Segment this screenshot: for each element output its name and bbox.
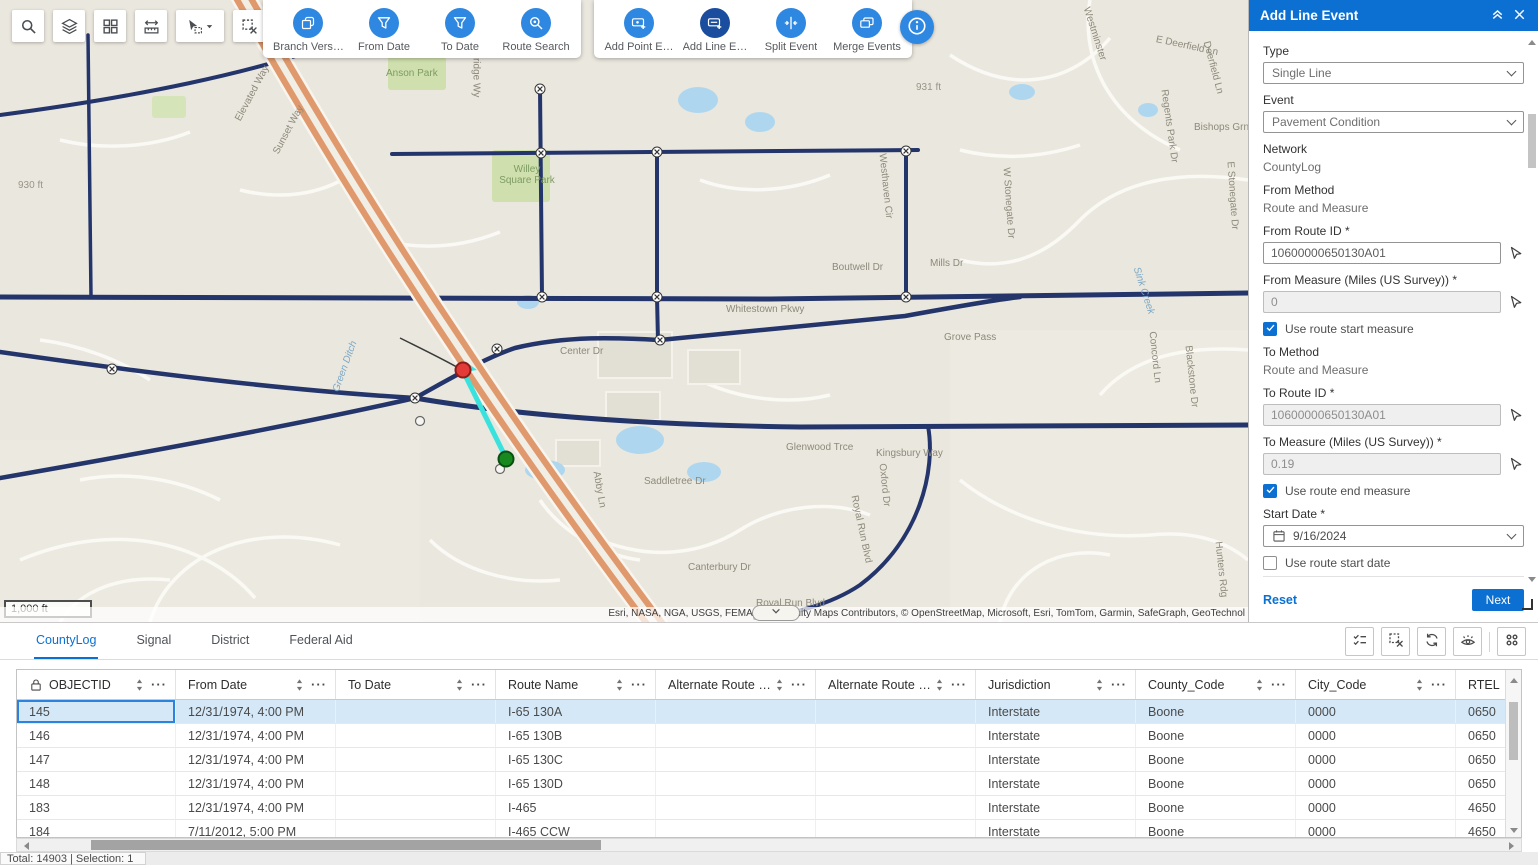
chevron-down-icon <box>1507 116 1517 126</box>
column-menu-icon[interactable]: ··· <box>471 677 487 692</box>
sort-icon[interactable] <box>936 679 943 691</box>
table-cell[interactable]: 147 <box>17 748 176 771</box>
column-header[interactable]: City_Code··· <box>1296 670 1456 699</box>
table-cell[interactable]: Boone <box>1136 772 1296 795</box>
column-header[interactable]: Alternate Route …··· <box>816 670 976 699</box>
panel-scrollbar[interactable] <box>1528 36 1536 586</box>
layers-tool[interactable] <box>53 10 85 42</box>
info-button[interactable] <box>900 10 934 44</box>
to-date-filter-tool[interactable]: To Date <box>427 8 493 53</box>
column-label: County_Code <box>1148 678 1252 692</box>
event-filter-toolbar: Branch Vers…From DateTo DateRoute Search <box>263 0 581 58</box>
column-menu-icon[interactable]: ··· <box>1111 677 1127 692</box>
eye-icon <box>1460 632 1476 651</box>
attribution-collapse-chevron[interactable] <box>752 605 800 621</box>
column-header[interactable]: RTEL <box>1456 670 1505 699</box>
column-header[interactable]: Alternate Route …··· <box>656 670 816 699</box>
scroll-right-arrow[interactable] <box>1509 842 1518 850</box>
sort-icon[interactable] <box>1416 679 1423 691</box>
check-icon <box>1265 556 1276 570</box>
table-cell[interactable]: 0000 <box>1296 820 1456 837</box>
close-icon <box>1512 10 1527 25</box>
use-route-start-date-label: Use route start date <box>1285 556 1390 570</box>
table-cell[interactable]: Interstate <box>976 796 1136 819</box>
tool-label: Merge Events <box>833 41 901 53</box>
scroll-left-arrow[interactable] <box>20 842 29 850</box>
table-cell[interactable] <box>816 820 976 837</box>
table-cell[interactable] <box>816 796 976 819</box>
column-label: RTEL <box>1468 678 1505 692</box>
table-cell[interactable]: I-65 130D <box>496 772 656 795</box>
table-cell[interactable]: 12/31/1974, 4:00 PM <box>176 748 336 771</box>
table-header-row: OBJECTID···From Date···To Date···Route N… <box>17 670 1505 700</box>
attribute-table-section: CountyLogSignalDistrictFederal Aid OBJEC… <box>0 622 1538 865</box>
from-measure-input <box>1263 291 1501 313</box>
checklist-icon <box>1352 632 1368 651</box>
table-row[interactable]: 14712/31/1974, 4:00 PMI-65 130CInterstat… <box>17 748 1505 772</box>
tool-label: Branch Vers… <box>273 41 343 53</box>
map-canvas <box>0 0 1248 622</box>
event-edit-toolbar: Add Point E…Add Line E…Split EventMerge … <box>594 0 912 58</box>
double-chevron-up-icon <box>1490 10 1505 25</box>
table-cell[interactable]: 0650 <box>1456 748 1505 771</box>
from-method-label: From Method <box>1263 183 1524 197</box>
event-select[interactable]: Pavement Condition <box>1263 111 1524 133</box>
event-label: Event <box>1263 93 1524 107</box>
table-options-button[interactable] <box>1497 627 1526 656</box>
clear-selection-icon <box>1388 632 1404 651</box>
type-value: Single Line <box>1272 66 1508 80</box>
tool-label: Route Search <box>502 41 569 53</box>
table-cell[interactable] <box>336 724 496 747</box>
column-header[interactable]: To Date··· <box>336 670 496 699</box>
table-cell[interactable]: Boone <box>1136 700 1296 723</box>
from-date-filter-tool[interactable]: From Date <box>351 8 417 53</box>
table-toolbar <box>1345 627 1526 656</box>
chevron-down-icon <box>770 604 782 622</box>
network-value: CountyLog <box>1263 160 1524 174</box>
close-panel-button[interactable] <box>1508 5 1530 27</box>
sort-icon[interactable] <box>776 679 783 691</box>
table-horizontal-scrollbar[interactable] <box>16 838 1522 852</box>
merge-events-tool[interactable]: Merge Events <box>834 8 900 53</box>
table-cell[interactable]: 146 <box>17 724 176 747</box>
use-route-start-measure-checkbox[interactable] <box>1263 322 1277 336</box>
panel-title: Add Line Event <box>1260 8 1358 23</box>
table-cell[interactable]: I-65 130A <box>496 700 656 723</box>
table-row[interactable]: 14812/31/1974, 4:00 PMI-65 130DInterstat… <box>17 772 1505 796</box>
column-label: From Date <box>188 678 292 692</box>
scrollbar-thumb[interactable] <box>1528 114 1536 168</box>
to-method-label: To Method <box>1263 345 1524 359</box>
table-cell[interactable] <box>336 796 496 819</box>
table-cell[interactable]: 0000 <box>1296 796 1456 819</box>
merge-icon <box>852 8 882 38</box>
table-cell[interactable]: 0000 <box>1296 724 1456 747</box>
column-header[interactable]: OBJECTID··· <box>17 670 176 699</box>
column-header[interactable]: Route Name··· <box>496 670 656 699</box>
sort-icon[interactable] <box>296 679 303 691</box>
column-label: City_Code <box>1308 678 1412 692</box>
scroll-up-arrow[interactable] <box>1510 674 1518 683</box>
branch-versions-tool[interactable]: Branch Vers… <box>275 8 341 53</box>
table-cell[interactable]: 12/31/1974, 4:00 PM <box>176 796 336 819</box>
column-menu-icon[interactable]: ··· <box>951 677 967 692</box>
start-date-value: 9/16/2024 <box>1293 529 1508 543</box>
chevron-down-icon <box>1507 67 1517 77</box>
tool-label: Add Line E… <box>683 41 748 53</box>
map-view[interactable]: 930 ftElevated WaySunset WayAnson ParkAl… <box>0 0 1248 622</box>
scroll-down-arrow[interactable] <box>1510 828 1518 837</box>
table-row[interactable]: 14512/31/1974, 4:00 PMI-65 130AInterstat… <box>17 700 1505 724</box>
use-route-start-measure-label: Use route start measure <box>1285 322 1414 336</box>
split-icon <box>776 8 806 38</box>
table-tabbar: CountyLogSignalDistrictFederal Aid <box>0 623 1538 660</box>
table-cell[interactable] <box>656 748 816 771</box>
table-cell[interactable] <box>816 772 976 795</box>
type-label: Type <box>1263 44 1524 58</box>
start-date-picker[interactable]: 9/16/2024 <box>1263 525 1524 547</box>
info-icon <box>907 16 927 39</box>
scroll-up-arrow[interactable] <box>1528 36 1536 45</box>
addpoint-icon <box>624 8 654 38</box>
reset-link[interactable]: Reset <box>1263 593 1297 607</box>
table-cell[interactable]: 0650 <box>1456 724 1505 747</box>
add-point-event-tool[interactable]: Add Point E… <box>606 8 672 53</box>
table-cell[interactable]: 0000 <box>1296 748 1456 771</box>
table-cell[interactable]: 148 <box>17 772 176 795</box>
table-cell[interactable] <box>336 772 496 795</box>
scrollbar-thumb[interactable] <box>1509 702 1518 760</box>
calendar-icon <box>1272 529 1286 543</box>
from-route-id-label: From Route ID * <box>1263 224 1524 238</box>
table-cell[interactable] <box>336 748 496 771</box>
use-route-start-date-checkbox[interactable] <box>1263 556 1277 570</box>
chevron-down-icon <box>1507 530 1517 540</box>
table-cell[interactable]: 12/31/1974, 4:00 PM <box>176 772 336 795</box>
addline-icon <box>700 8 730 38</box>
table-cell[interactable]: 7/11/2012, 5:00 PM <box>176 820 336 837</box>
from-route-id-input[interactable] <box>1263 242 1501 264</box>
table-cell[interactable]: Boone <box>1136 796 1296 819</box>
attribute-table: OBJECTID···From Date···To Date···Route N… <box>16 669 1522 838</box>
add-line-event-tool[interactable]: Add Line E… <box>682 8 748 53</box>
table-cell[interactable]: 0000 <box>1296 700 1456 723</box>
split-event-tool[interactable]: Split Event <box>758 8 824 53</box>
table-cell[interactable]: 0000 <box>1296 772 1456 795</box>
tab-federal-aid[interactable]: Federal Aid <box>287 623 354 659</box>
tool-label: Add Point E… <box>604 41 673 53</box>
use-route-end-measure-label: Use route end measure <box>1285 484 1410 498</box>
table-cell[interactable]: 12/31/1974, 4:00 PM <box>176 700 336 723</box>
tab-district[interactable]: District <box>209 623 251 659</box>
tool-label: Split Event <box>765 41 818 53</box>
clear-selection-tool[interactable] <box>233 10 265 42</box>
table-cell[interactable]: Interstate <box>976 772 1136 795</box>
table-cell[interactable]: 4650 <box>1456 796 1505 819</box>
table-cell[interactable]: Interstate <box>976 748 1136 771</box>
clear-selection-button[interactable] <box>1381 627 1410 656</box>
table-cell[interactable]: Interstate <box>976 724 1136 747</box>
column-label: Jurisdiction <box>988 678 1092 692</box>
table-row[interactable]: 1847/11/2012, 5:00 PMI-465 CCWInterstate… <box>17 820 1505 837</box>
collapse-panel-button[interactable] <box>1486 5 1508 27</box>
table-cell[interactable]: I-465 CCW <box>496 820 656 837</box>
table-cell[interactable] <box>816 724 976 747</box>
table-cell[interactable]: 0650 <box>1456 772 1505 795</box>
record-count-status: Total: 14903 | Selection: 1 <box>0 852 146 865</box>
tab-signal[interactable]: Signal <box>134 623 173 659</box>
table-row[interactable]: 14612/31/1974, 4:00 PMI-65 130BInterstat… <box>17 724 1505 748</box>
start-date-label: Start Date * <box>1263 507 1524 521</box>
table-cell[interactable] <box>336 820 496 837</box>
filter-icon <box>369 8 399 38</box>
toggle-visibility-button[interactable] <box>1453 627 1482 656</box>
table-cell[interactable]: I-465 <box>496 796 656 819</box>
panel-footer: Reset Next <box>1263 576 1524 616</box>
check-icon <box>1265 484 1276 498</box>
table-tabs: CountyLogSignalDistrictFederal Aid <box>34 623 355 659</box>
route-search-tool[interactable]: Route Search <box>503 8 569 53</box>
table-row[interactable]: 18312/31/1974, 4:00 PMI-465InterstateBoo… <box>17 796 1505 820</box>
map-attribution: Esri, NASA, NGA, USGS, FEMA | Community … <box>0 607 1248 622</box>
sort-icon[interactable] <box>616 679 623 691</box>
to-method-value: Route and Measure <box>1263 363 1524 377</box>
tool-label: To Date <box>441 41 479 53</box>
table-cell[interactable]: 4650 <box>1456 820 1505 837</box>
column-menu-icon[interactable]: ··· <box>1271 677 1287 692</box>
table-cell[interactable]: Boone <box>1136 724 1296 747</box>
column-menu-icon[interactable]: ··· <box>1431 677 1447 692</box>
check-icon <box>1265 322 1276 336</box>
pick-from-route-on-map-icon[interactable] <box>1508 245 1524 261</box>
branch-icon <box>293 8 323 38</box>
to-measure-marker <box>499 452 514 467</box>
table-cell[interactable] <box>656 820 816 837</box>
table-cell[interactable]: I-65 130B <box>496 724 656 747</box>
column-menu-icon[interactable]: ··· <box>791 677 807 692</box>
pick-to-measure-on-map-icon[interactable] <box>1508 456 1524 472</box>
tab-countylog[interactable]: CountyLog <box>34 623 98 659</box>
sort-icon[interactable] <box>1256 679 1263 691</box>
table-statusbar: Total: 14903 | Selection: 1 <box>0 852 1538 865</box>
event-value: Pavement Condition <box>1272 115 1508 129</box>
column-label: To Date <box>348 678 452 692</box>
to-measure-label: To Measure (Miles (US Survey)) * <box>1263 435 1524 449</box>
table-cell[interactable] <box>656 724 816 747</box>
filter-icon <box>445 8 475 38</box>
table-cell[interactable] <box>656 772 816 795</box>
use-route-end-measure-checkbox[interactable] <box>1263 484 1277 498</box>
measure-tool[interactable] <box>135 10 167 42</box>
table-cell[interactable]: 12/31/1974, 4:00 PM <box>176 724 336 747</box>
column-menu-icon[interactable]: ··· <box>151 677 167 692</box>
table-cell[interactable] <box>816 700 976 723</box>
pick-to-route-on-map-icon[interactable] <box>1508 407 1524 423</box>
column-menu-icon[interactable]: ··· <box>631 677 647 692</box>
overview-windows-tool[interactable] <box>94 10 126 42</box>
add-line-event-panel: Add Line Event Type Single Line Event Pa… <box>1248 0 1538 622</box>
table-cell[interactable] <box>336 700 496 723</box>
search-tool[interactable] <box>12 10 44 42</box>
table-cell[interactable]: 183 <box>17 796 176 819</box>
from-method-value: Route and Measure <box>1263 201 1524 215</box>
type-select[interactable]: Single Line <box>1263 62 1524 84</box>
column-label: Route Name <box>508 678 612 692</box>
table-vertical-scrollbar[interactable] <box>1505 670 1521 837</box>
table-cell[interactable]: Boone <box>1136 748 1296 771</box>
to-route-id-label: To Route ID * <box>1263 386 1524 400</box>
panel-header: Add Line Event <box>1249 0 1538 31</box>
to-measure-input <box>1263 453 1501 475</box>
toolbar-divider <box>1489 632 1490 652</box>
table-cell[interactable]: 145 <box>17 700 176 723</box>
table-cell[interactable] <box>656 700 816 723</box>
sort-icon[interactable] <box>456 679 463 691</box>
pick-from-measure-on-map-icon[interactable] <box>1508 294 1524 310</box>
network-label: Network <box>1263 142 1524 156</box>
table-cell[interactable]: Boone <box>1136 820 1296 837</box>
sort-icon[interactable] <box>1096 679 1103 691</box>
dots-grid-icon <box>1504 632 1520 651</box>
scrollbar-thumb[interactable] <box>91 840 601 850</box>
table-cell[interactable]: 184 <box>17 820 176 837</box>
panel-resize-handle[interactable] <box>1522 599 1533 610</box>
column-label: OBJECTID <box>49 678 132 692</box>
to-route-id-input <box>1263 404 1501 426</box>
lock-icon <box>29 678 43 692</box>
column-header[interactable]: From Date··· <box>176 670 336 699</box>
scroll-down-arrow[interactable] <box>1528 577 1536 586</box>
column-header[interactable]: County_Code··· <box>1136 670 1296 699</box>
table-cell[interactable]: 0650 <box>1456 700 1505 723</box>
from-measure-marker <box>456 363 471 378</box>
routesearch-icon <box>521 8 551 38</box>
column-label: Alternate Route … <box>828 678 932 692</box>
column-menu-icon[interactable]: ··· <box>311 677 327 692</box>
table-cell[interactable] <box>816 748 976 771</box>
table-cell[interactable]: Interstate <box>976 700 1136 723</box>
table-cell[interactable]: I-65 130C <box>496 748 656 771</box>
column-header[interactable]: Jurisdiction··· <box>976 670 1136 699</box>
select-tool[interactable] <box>176 10 224 42</box>
panel-body: Type Single Line Event Pavement Conditio… <box>1249 31 1526 570</box>
sort-icon[interactable] <box>136 679 143 691</box>
table-cell[interactable] <box>656 796 816 819</box>
refresh-button[interactable] <box>1417 627 1446 656</box>
from-measure-label: From Measure (Miles (US Survey)) * <box>1263 273 1524 287</box>
show-selected-records-button[interactable] <box>1345 627 1374 656</box>
column-label: Alternate Route … <box>668 678 772 692</box>
table-cell[interactable]: Interstate <box>976 820 1136 837</box>
table-body: 14512/31/1974, 4:00 PMI-65 130AInterstat… <box>17 700 1505 837</box>
refresh-icon <box>1424 632 1440 651</box>
next-button[interactable]: Next <box>1472 589 1524 611</box>
tool-label: From Date <box>358 41 410 53</box>
